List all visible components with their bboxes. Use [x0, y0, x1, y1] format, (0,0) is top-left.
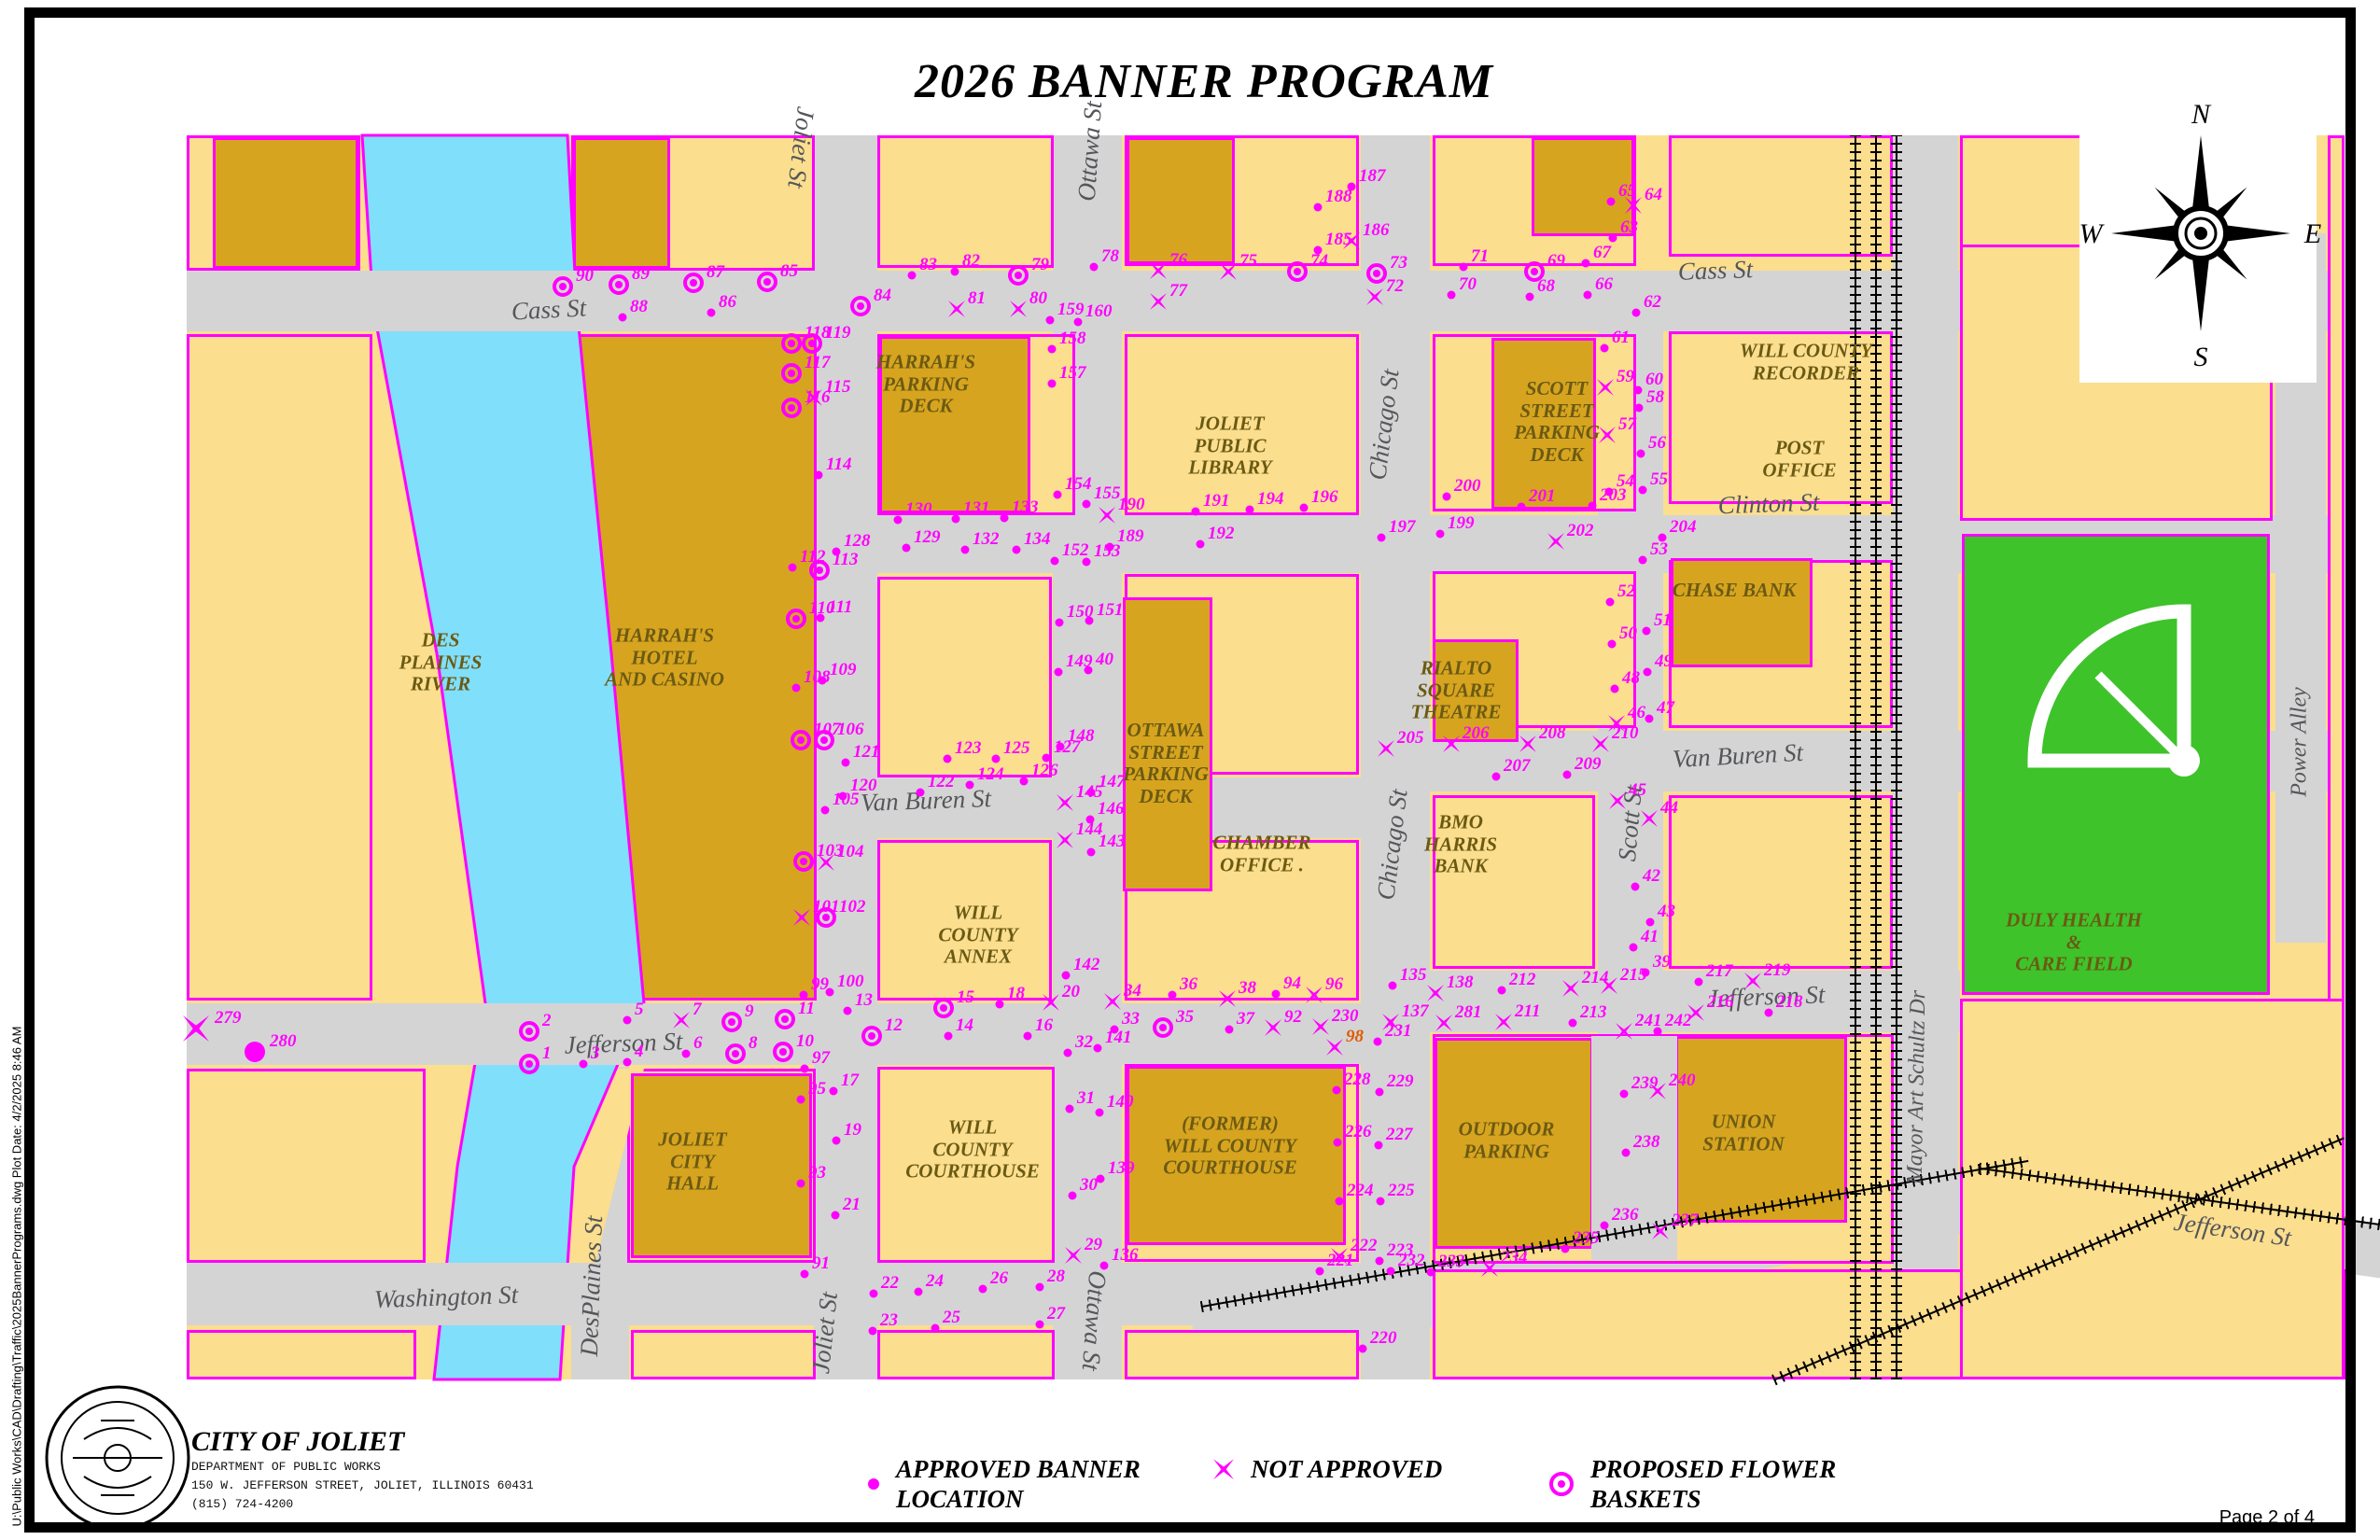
page: 2026 BANNER PROGRAM Cass StCass StClinto…	[0, 0, 2380, 1540]
plot-file-path: U:\Public Works\CAD\Drafting\Traffic\202…	[10, 818, 24, 1527]
page-border	[24, 7, 2356, 1533]
